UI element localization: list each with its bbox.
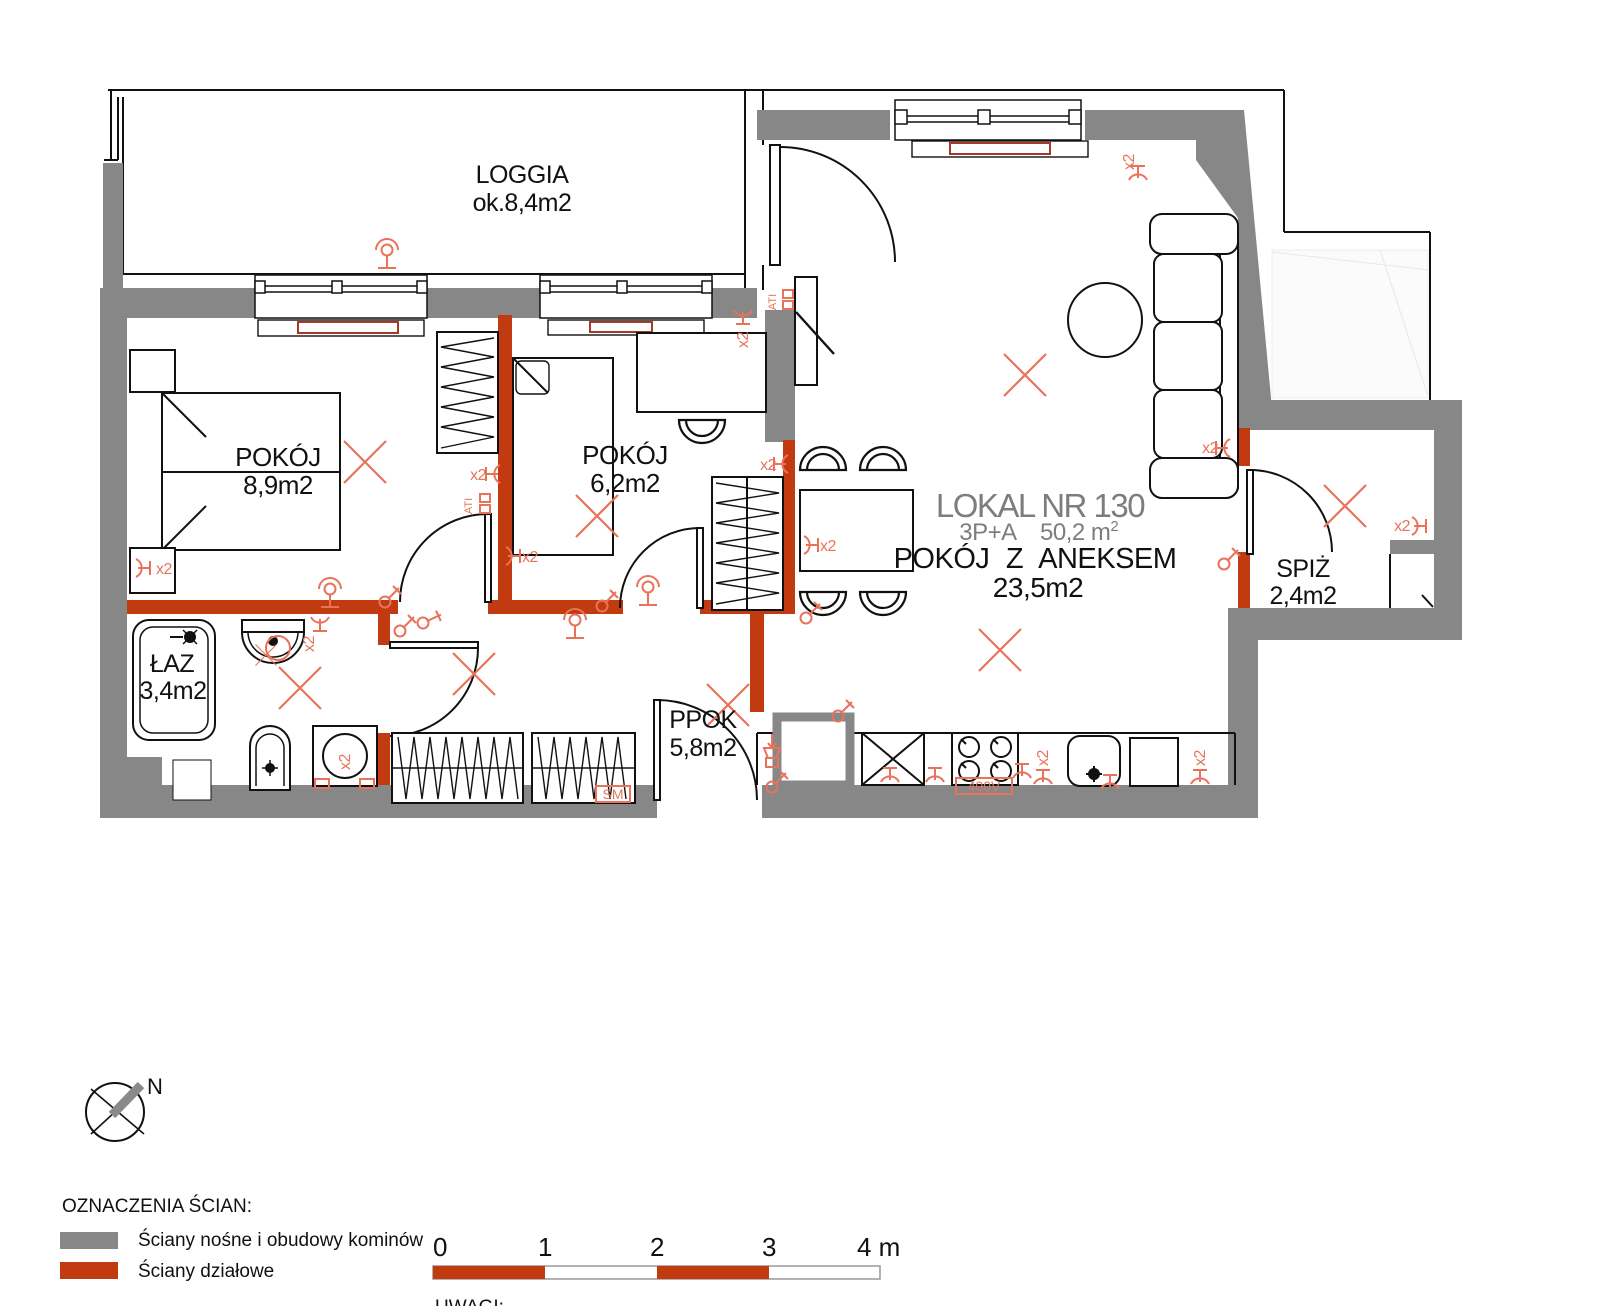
door-bathroom	[390, 642, 478, 736]
compass: N	[86, 1074, 163, 1141]
wall-left	[100, 288, 127, 785]
wall-lamp-icon	[637, 576, 659, 605]
shaft	[777, 717, 850, 785]
scale-tick-1: 1	[538, 1232, 552, 1262]
door-bedroom2	[620, 528, 703, 608]
title-block: LOKAL NR 130 3P+A 50,2 m2 POKÓJ Z ANEKSE…	[894, 487, 1177, 603]
floor-plan-page: x2 x2 x2 x2 x2 x2 x2 x2 x2 x2 x2 x2 x2 A…	[0, 0, 1608, 1306]
wardrobe-bedroom2	[712, 477, 783, 610]
switch-icon	[395, 615, 417, 637]
wall-pantry-top	[1238, 400, 1462, 430]
room-area-bedroom1: 8,9m2	[243, 470, 313, 500]
neighbor-area	[1272, 250, 1428, 398]
window-bedroom1	[255, 275, 427, 336]
wall-lamp-icon	[376, 239, 398, 268]
room-area-bathroom: 3,4m2	[140, 677, 207, 705]
ceiling-light-icon	[453, 653, 495, 695]
room-area-pantry: 2,4m2	[1270, 582, 1337, 610]
nightstand-top	[130, 350, 175, 392]
switch-icon	[1219, 548, 1241, 570]
wall-chimney	[765, 310, 795, 442]
room-area-loggia: ok.8,4m2	[473, 189, 572, 217]
legend-label-load-bearing: Ściany nośne i obudowy kominów	[138, 1229, 423, 1251]
room-label-bathroom: ŁAZ	[150, 650, 195, 678]
socket-icon	[1412, 517, 1426, 535]
window-living	[895, 100, 1088, 157]
wall-bottom-east	[762, 785, 1258, 818]
unit-total-area: 50,2 m2	[1040, 518, 1118, 546]
x2-label: x2	[735, 331, 752, 348]
legend-label-partition: Ściany działowe	[138, 1260, 274, 1282]
window-bedroom2	[540, 275, 712, 335]
scale-tick-2: 2	[650, 1232, 664, 1262]
unit-layout-type: 3P+A	[959, 519, 1017, 546]
socket-icon	[311, 617, 329, 631]
scale-tick-0: 0	[433, 1232, 447, 1262]
dining-table-set	[800, 447, 913, 615]
ati-label: ATI	[767, 294, 779, 310]
wardrobe-bedroom1	[437, 332, 498, 453]
x2-label: x2	[760, 457, 777, 474]
scale-tick-4m: 4 m	[857, 1232, 900, 1262]
ceiling-light-icon	[979, 629, 1021, 671]
scale-segment-red	[433, 1266, 545, 1279]
floor-plan-canvas: x2 x2 x2 x2 x2 x2 x2 x2 x2 x2 x2 x2 x2 A…	[0, 0, 1608, 1306]
socket-icon	[1191, 770, 1209, 784]
x2-label: x2	[156, 561, 173, 578]
room-label-bedroom1: POKÓJ	[235, 442, 321, 472]
ati-label: ATI	[463, 498, 475, 514]
room-label-loggia: LOGGIA	[476, 161, 570, 189]
coffee-table	[1068, 283, 1142, 357]
annex-room-area: 23,5m2	[993, 572, 1083, 603]
legend-swatch-partition	[60, 1262, 118, 1279]
wall-left-pier	[103, 163, 123, 290]
windows	[255, 100, 1088, 336]
wall-pantry-bottom	[1228, 608, 1462, 640]
toilet	[250, 726, 290, 790]
room-label-hall: PPOK	[669, 706, 737, 734]
room-area-bedroom2: 6,2m2	[590, 468, 660, 498]
x2-label: x2	[1035, 749, 1052, 766]
switch-icon	[416, 606, 444, 634]
hall-wardrobe-1	[392, 733, 523, 803]
x2-label: x2	[820, 538, 837, 555]
legend-swatch-load-bearing	[60, 1232, 118, 1249]
legend: OZNACZENIA ŚCIAN: Ściany nośne i obudowy…	[60, 1195, 423, 1282]
notes-heading: UWAGI:	[435, 1297, 504, 1306]
scale-tick-3: 3	[762, 1232, 776, 1262]
tv-cabinet	[795, 277, 834, 385]
dishwasher	[1130, 738, 1178, 786]
legend-heading: OZNACZENIA ŚCIAN:	[62, 1195, 252, 1217]
scale-bar: 0 1 2 3 4 m	[433, 1232, 900, 1279]
power-label: 400V	[968, 778, 1001, 794]
wall-top-living-left	[757, 110, 890, 140]
x2-label: x2	[1202, 440, 1219, 457]
socket-icon	[1034, 770, 1052, 784]
sm-label: SM	[603, 786, 624, 802]
wall-kitchen-right	[1228, 608, 1258, 818]
washbasin	[242, 620, 304, 663]
sink	[1068, 736, 1120, 786]
annex-room-name: POKÓJ Z ANEKSEM	[894, 542, 1177, 575]
radiator	[298, 322, 398, 333]
x2-label: x2	[470, 467, 487, 484]
wall-niche-top	[1390, 540, 1434, 554]
door-balcony	[770, 145, 895, 265]
wall-notch	[173, 760, 211, 800]
socket-icon	[926, 768, 944, 782]
room-label-bedroom2: POKÓJ	[582, 440, 668, 470]
x2-label: x2	[337, 753, 354, 770]
x2-label: x2	[522, 549, 539, 566]
door-bedroom1	[400, 514, 491, 602]
ceiling-light-icon	[1004, 354, 1046, 396]
x2-label: x2	[301, 635, 318, 652]
ceiling-light-icon	[344, 441, 386, 483]
wall-pantry-right	[1434, 430, 1462, 612]
room-label-pantry: SPIŻ	[1276, 554, 1330, 583]
room-area-hall: 5,8m2	[670, 734, 737, 762]
north-label: N	[147, 1074, 163, 1099]
ceiling-light-icon	[1324, 485, 1366, 527]
x2-label: x2	[1121, 153, 1138, 170]
radiator	[950, 143, 1050, 154]
x2-label: x2	[1192, 749, 1209, 766]
door-pantry	[1247, 470, 1332, 554]
ceiling-light-icon	[279, 667, 321, 709]
desk	[637, 333, 766, 443]
kitchen	[757, 717, 1235, 786]
pantry-niche	[1390, 554, 1434, 608]
socket-icon	[486, 465, 500, 483]
radiator	[590, 322, 652, 332]
sofa	[1150, 214, 1238, 498]
x2-label: x2	[1394, 518, 1411, 535]
scale-segment-red	[657, 1266, 769, 1279]
